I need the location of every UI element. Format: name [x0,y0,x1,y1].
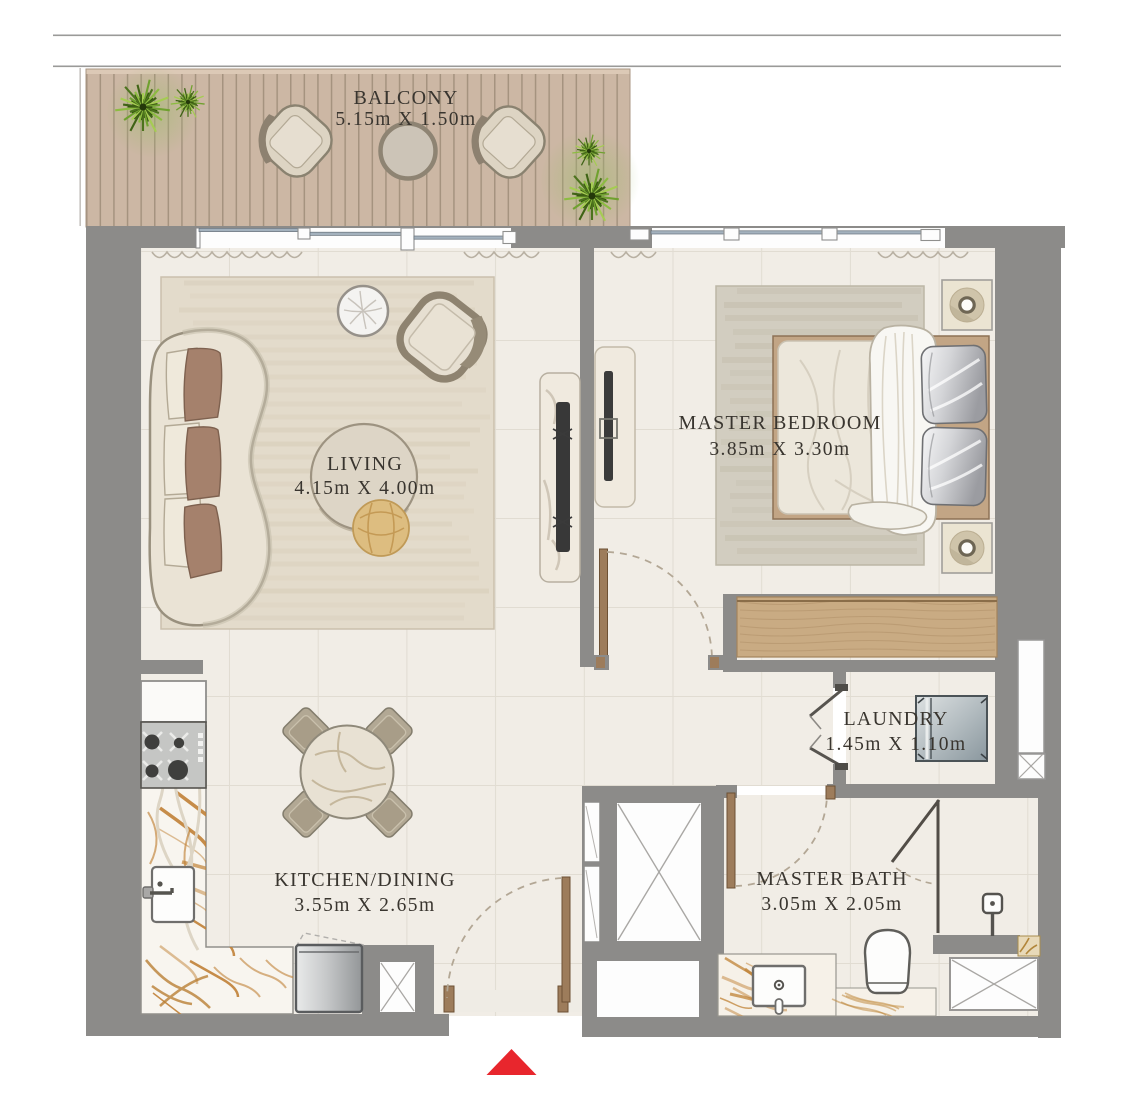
svg-text:LAUNDRY: LAUNDRY [843,708,948,730]
svg-text:KITCHEN/DINING: KITCHEN/DINING [274,869,455,891]
svg-text:4.15m X 4.00m: 4.15m X 4.00m [294,478,435,499]
svg-text:3.85m X 3.30m: 3.85m X 3.30m [709,439,850,460]
svg-text:MASTER BATH: MASTER BATH [756,868,908,890]
svg-text:MASTER BEDROOM: MASTER BEDROOM [679,412,882,434]
svg-text:5.15m X 1.50m: 5.15m X 1.50m [335,109,476,130]
svg-text:BALCONY: BALCONY [353,87,458,109]
svg-text:1.45m X 1.10m: 1.45m X 1.10m [825,734,966,755]
svg-text:3.05m X 2.05m: 3.05m X 2.05m [761,894,902,915]
svg-text:LIVING: LIVING [327,453,403,475]
svg-text:3.55m X 2.65m: 3.55m X 2.65m [294,895,435,916]
